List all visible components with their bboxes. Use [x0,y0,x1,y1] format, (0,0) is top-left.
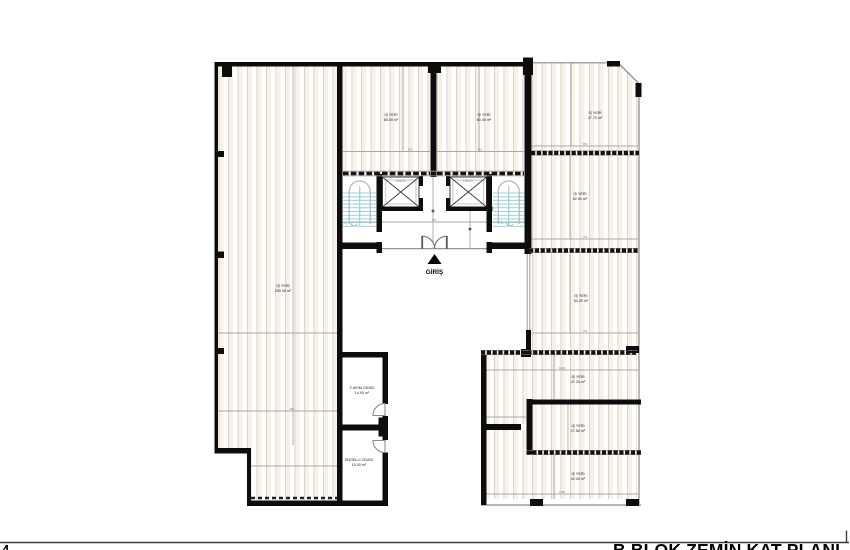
svg-text:750: 750 [583,142,588,146]
svg-text:610: 610 [478,148,483,152]
svg-text:İŞ YERİ: İŞ YERİ [276,283,289,288]
svg-text:ENGELLİ ODASI: ENGELLİ ODASI [345,457,373,462]
svg-text:910: 910 [432,218,437,222]
svg-text:İŞ YERİ: İŞ YERİ [571,374,584,379]
svg-text:27.50 m²: 27.50 m² [571,429,586,433]
svg-text:B BLOK ZEMİN KAT PLANI: B BLOK ZEMİN KAT PLANI [613,540,840,550]
svg-text:İŞ YERİ: İŞ YERİ [588,110,601,115]
svg-text:54.20 m²: 54.20 m² [574,299,589,303]
svg-text:İŞ YERİ: İŞ YERİ [571,423,584,428]
svg-text:750: 750 [583,329,588,333]
svg-text:1000: 1000 [559,490,565,494]
svg-text:65.00 m²: 65.00 m² [384,118,399,122]
svg-text:İŞ YERİ: İŞ YERİ [573,191,586,196]
svg-text:İŞ YERİ: İŞ YERİ [571,471,584,476]
svg-text:175x175: 175x175 [463,179,474,183]
svg-text:62.00 m²: 62.00 m² [573,197,588,201]
svg-text:47.20 m²: 47.20 m² [571,380,586,384]
svg-text:60.00 m²: 60.00 m² [477,118,492,122]
svg-text:İŞ YERİ: İŞ YERİ [477,112,490,117]
svg-text:14.00 m²: 14.00 m² [355,391,370,395]
svg-text:GİRİŞ: GİRİŞ [426,267,444,276]
svg-text:47.70 m²: 47.70 m² [588,116,603,120]
svg-text:İŞ YERİ: İŞ YERİ [384,112,397,117]
svg-text:175x175: 175x175 [396,179,407,183]
svg-text:1000: 1000 [559,366,565,370]
svg-text:İŞ YERİ: İŞ YERİ [574,293,587,298]
svg-text:610: 610 [290,407,295,411]
svg-text:Z.AKIM ODASI: Z.AKIM ODASI [350,386,375,390]
svg-text:4: 4 [2,542,10,550]
svg-text:10.00 m²: 10.00 m² [352,463,367,467]
svg-text:610: 610 [408,148,413,152]
svg-text:750: 750 [583,235,588,239]
svg-text:230.00 m²: 230.00 m² [275,289,292,293]
svg-text:42.00 m²: 42.00 m² [571,477,586,481]
